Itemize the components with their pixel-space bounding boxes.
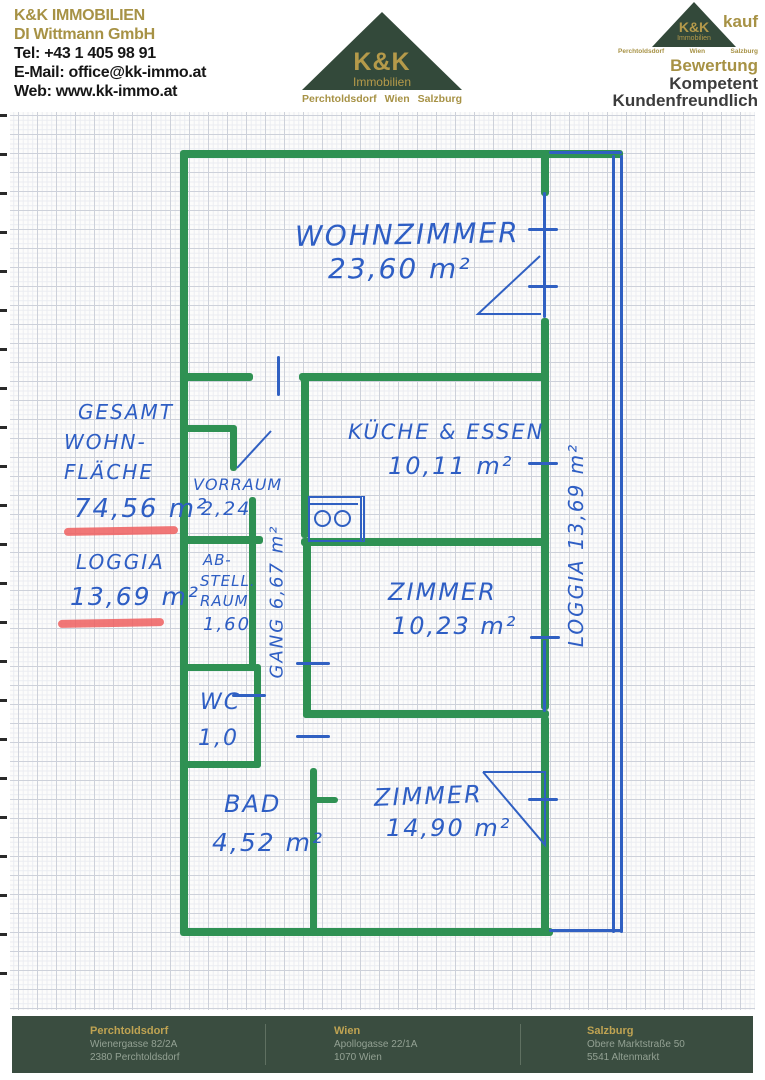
summary-label-1: GESAMT [78, 400, 174, 424]
wall-bad-stub [310, 797, 338, 803]
window-line [543, 640, 546, 712]
wall-entrance [183, 425, 235, 432]
footer-city: Perchtoldsdorf [90, 1025, 180, 1038]
window-tick [528, 798, 558, 801]
room-label-abstellraum-2: STELL. [200, 572, 256, 590]
badge-locations: Perchtoldsdorf Wien Salzburg [618, 48, 758, 55]
scanned-floorplan-page: K&K IMMOBILIEN DI Wittmann GmbH Tel: +43… [0, 0, 765, 1080]
room-area-kueche: 10,11 m² [388, 452, 513, 480]
logo-brand-subtext: Immobilien [302, 75, 462, 89]
wall-gang-right [303, 538, 311, 718]
logo-location-1: Perchtoldsdorf [302, 93, 377, 105]
room-area-vorraum: 2,24 [201, 498, 251, 520]
kitchen-sink-icon [308, 496, 365, 542]
window-tick [528, 228, 558, 231]
summary-label-3: FLÄCHE [64, 460, 154, 484]
company-contact-block: K&K IMMOBILIEN DI Wittmann GmbH Tel: +43… [14, 6, 206, 101]
loggia-top-line [549, 151, 622, 154]
badge-brand-text: K&K [652, 19, 736, 35]
room-area-bad: 4,52 m² [212, 828, 324, 857]
company-phone: Tel: +43 1 405 98 91 [14, 44, 206, 63]
scan-edge-artifacts [0, 114, 7, 1010]
footer-office-perchtoldsdorf: Perchtoldsdorf Wienergasse 82/2A 2380 Pe… [90, 1025, 180, 1064]
room-label-vorraum: VORRAUM [193, 475, 282, 494]
wall-right-segment [541, 150, 549, 196]
window-line [543, 192, 546, 318]
footer-zip: 1070 Wien [334, 1051, 417, 1064]
footer-zip: 2380 Perchtoldsdorf [90, 1051, 180, 1064]
door-tick-gang [296, 735, 330, 738]
badge-location-3: Salzburg [731, 48, 758, 55]
room-area-wc: 1,0 [198, 726, 239, 751]
wall-outer-bottom [183, 928, 553, 936]
wall-zimmer-divider [303, 710, 549, 718]
footer-office-salzburg: Salzburg Obere Marktstraße 50 5541 Alten… [587, 1025, 685, 1064]
footer-street: Apollogasse 22/1A [334, 1038, 417, 1051]
loggia-bottom-line [549, 929, 622, 932]
badge-tagline-bewertung: Bewertung [670, 56, 758, 76]
company-subtitle: DI Wittmann GmbH [14, 25, 206, 44]
wall-wc-bottom [183, 761, 261, 768]
room-area-abstellraum: 1,60 [203, 614, 251, 635]
wall-abstellraum-bottom [183, 664, 258, 671]
company-email: E-Mail: office@kk-immo.at [14, 63, 206, 82]
footer-street: Wienergasse 82/2A [90, 1038, 180, 1051]
room-area-wohnzimmer: 23,60 m² [328, 252, 472, 285]
badge-tagline-kundenfreundlich: Kundenfreundlich [613, 91, 758, 111]
room-area-zimmer2: 14,90 m² [386, 814, 511, 842]
logo-location-3: Salzburg [418, 93, 462, 105]
logo-locations: Perchtoldsdorf Wien Salzburg [302, 93, 462, 105]
footer-divider [520, 1024, 521, 1065]
loggia-outer-wall-line [620, 155, 623, 933]
room-label-abstellraum-3: RAUM [200, 592, 249, 610]
wall-right-segment [541, 716, 549, 936]
company-logo: K&K Immobilien Perchtoldsdorf Wien Salzb… [302, 12, 462, 105]
badge-brand-subtext: Immobilien [652, 35, 736, 42]
footer-office-bar: Perchtoldsdorf Wienergasse 82/2A 2380 Pe… [12, 1016, 753, 1073]
summary-total-area: 74,56 m² [74, 494, 208, 524]
footer-divider [265, 1024, 266, 1065]
room-label-kueche: KÜCHE & ESSEN [348, 420, 544, 444]
room-label-zimmer1: ZIMMER [388, 578, 497, 606]
room-area-zimmer1: 10,23 m² [392, 612, 517, 640]
room-label-zimmer2: ZIMMER [374, 780, 484, 812]
room-label-bad: BAD [224, 790, 281, 818]
wall-wohnzimmer-bottom-right [299, 373, 549, 381]
summary-loggia-label: LOGGIA [76, 550, 165, 574]
room-label-wohnzimmer: WOHNZIMMER [295, 216, 520, 253]
company-web: Web: www.kk-immo.at [14, 82, 206, 101]
wall-wohnzimmer-bottom-left [183, 373, 253, 381]
window-tick [528, 285, 558, 288]
badge-location-2: Wien [690, 48, 705, 55]
room-label-abstellraum-1: AB- [203, 551, 232, 569]
company-name: K&K IMMOBILIEN [14, 6, 206, 25]
door-tick-wohnzimmer [277, 356, 280, 396]
footer-city: Salzburg [587, 1025, 685, 1038]
logo-location-2: Wien [385, 93, 410, 105]
sink-basin-right [334, 510, 351, 527]
room-label-loggia-vertical: LOGGIA 13,69 m² [552, 400, 600, 690]
wall-entrance-stub [230, 425, 237, 471]
footer-office-wien: Wien Apollogasse 22/1A 1070 Wien [334, 1025, 417, 1064]
brand-badge: kauf K&K Immobilien Perchtoldsdorf Wien … [600, 0, 758, 110]
door-tick-gang [296, 662, 330, 665]
badge-location-1: Perchtoldsdorf [618, 48, 664, 55]
room-label-wc: WC [200, 690, 241, 715]
loggia-outer-wall-line [612, 155, 615, 933]
footer-zip: 5541 Altenmarkt [587, 1051, 685, 1064]
sink-ledge [308, 503, 358, 505]
summary-label-2: WOHN- [64, 430, 147, 454]
sink-basin-left [314, 510, 331, 527]
summary-loggia-area: 13,69 m² [70, 582, 200, 611]
room-label-gang: GANG 6,67 m² [256, 495, 298, 707]
logo-brand-text: K&K [302, 48, 462, 77]
footer-city: Wien [334, 1025, 417, 1038]
footer-street: Obere Marktstraße 50 [587, 1038, 685, 1051]
